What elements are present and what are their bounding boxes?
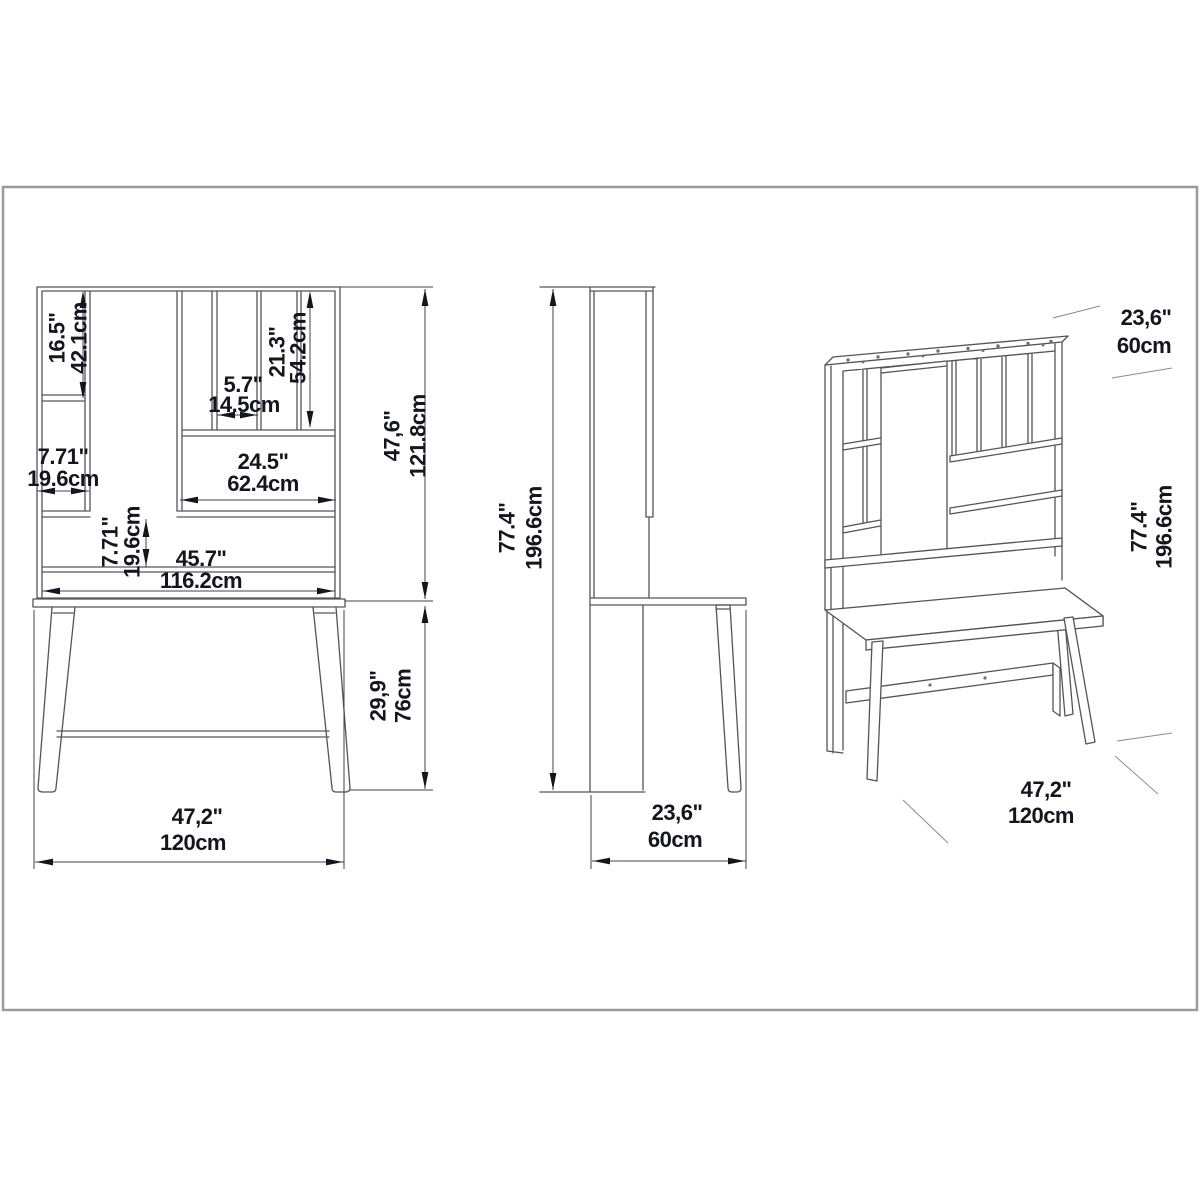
- dim-front-slot-height-cm: 54.2cm: [286, 312, 311, 384]
- dim-front-open-section-width-cm: 62.4cm: [227, 471, 299, 496]
- dim-front-left-column-width-cm: 19.6cm: [27, 466, 99, 491]
- dim-perspective-total-width-cm: 120cm: [1008, 803, 1074, 828]
- dim-side-depth-cm: 60cm: [648, 827, 702, 852]
- front-desktop: [33, 599, 345, 607]
- dim-perspective-total-height-cm: 196.6cm: [1152, 485, 1177, 568]
- dim-front-total-width-cm: 120cm: [160, 830, 226, 855]
- dim-perspective-depth-in: 23,6": [1121, 305, 1172, 330]
- front-stretcher: [57, 731, 329, 737]
- perspective-front-left-leg: [867, 641, 883, 781]
- dim-front-total-width-in: 47,2": [172, 804, 223, 829]
- perspective-stretcher-dot: [928, 683, 931, 686]
- side-dimension-arrows: [550, 289, 745, 864]
- dim-front-desk-height-cm: 76cm: [391, 669, 416, 723]
- dim-side-depth-in: 23,6": [652, 800, 703, 825]
- perspective-back-panel: [827, 612, 843, 753]
- side-view: 77.4" 196.6cm 23,6" 60cm: [495, 287, 747, 869]
- dim-perspective-total-width-in: 47,2": [1021, 777, 1072, 802]
- side-panel-outline: [540, 287, 746, 792]
- technical-drawing: 16.5" 42.1cm 5.7" 14.5cm 21.3" 54.2cm 7.…: [0, 0, 1200, 1200]
- dim-perspective-depth-cm: 60cm: [1117, 333, 1171, 358]
- dim-front-hutch-height-in: 47,6": [380, 411, 405, 462]
- technical-drawing-page: 16.5" 42.1cm 5.7" 14.5cm 21.3" 54.2cm 7.…: [0, 0, 1200, 1200]
- dim-side-total-height-in: 77.4": [495, 503, 520, 554]
- dim-front-shelf-band-height-cm: 19.6cm: [120, 506, 145, 578]
- dim-front-slot-width-cm: 14.5cm: [208, 392, 280, 417]
- dim-perspective-total-height-in: 77.4": [1127, 502, 1152, 553]
- perspective-stretcher-end: [1053, 663, 1060, 716]
- perspective-stretcher-dot: [983, 676, 986, 679]
- dim-front-hutch-height-cm: 121.8cm: [406, 394, 431, 477]
- dim-front-inner-width-cm: 116.2cm: [160, 568, 242, 593]
- perspective-right-shelf-mid: [950, 490, 1062, 514]
- front-left-leg: [38, 607, 75, 792]
- perspective-view: 23,6" 60cm 77.4" 196.6cm 47,2" 120cm: [825, 305, 1177, 843]
- dim-side-total-height-cm: 196.6cm: [522, 486, 547, 569]
- front-view: 16.5" 42.1cm 5.7" 14.5cm 21.3" 54.2cm 7.…: [27, 287, 433, 869]
- perspective-left-shelf-lower: [843, 519, 886, 533]
- dim-front-left-shelf-height-cm: 42.1cm: [67, 302, 92, 374]
- side-leg: [716, 605, 741, 792]
- perspective-left-shelf-upper: [843, 437, 886, 450]
- perspective-door-panel: [881, 361, 947, 561]
- dim-front-desk-height-in: 29,9": [366, 671, 391, 722]
